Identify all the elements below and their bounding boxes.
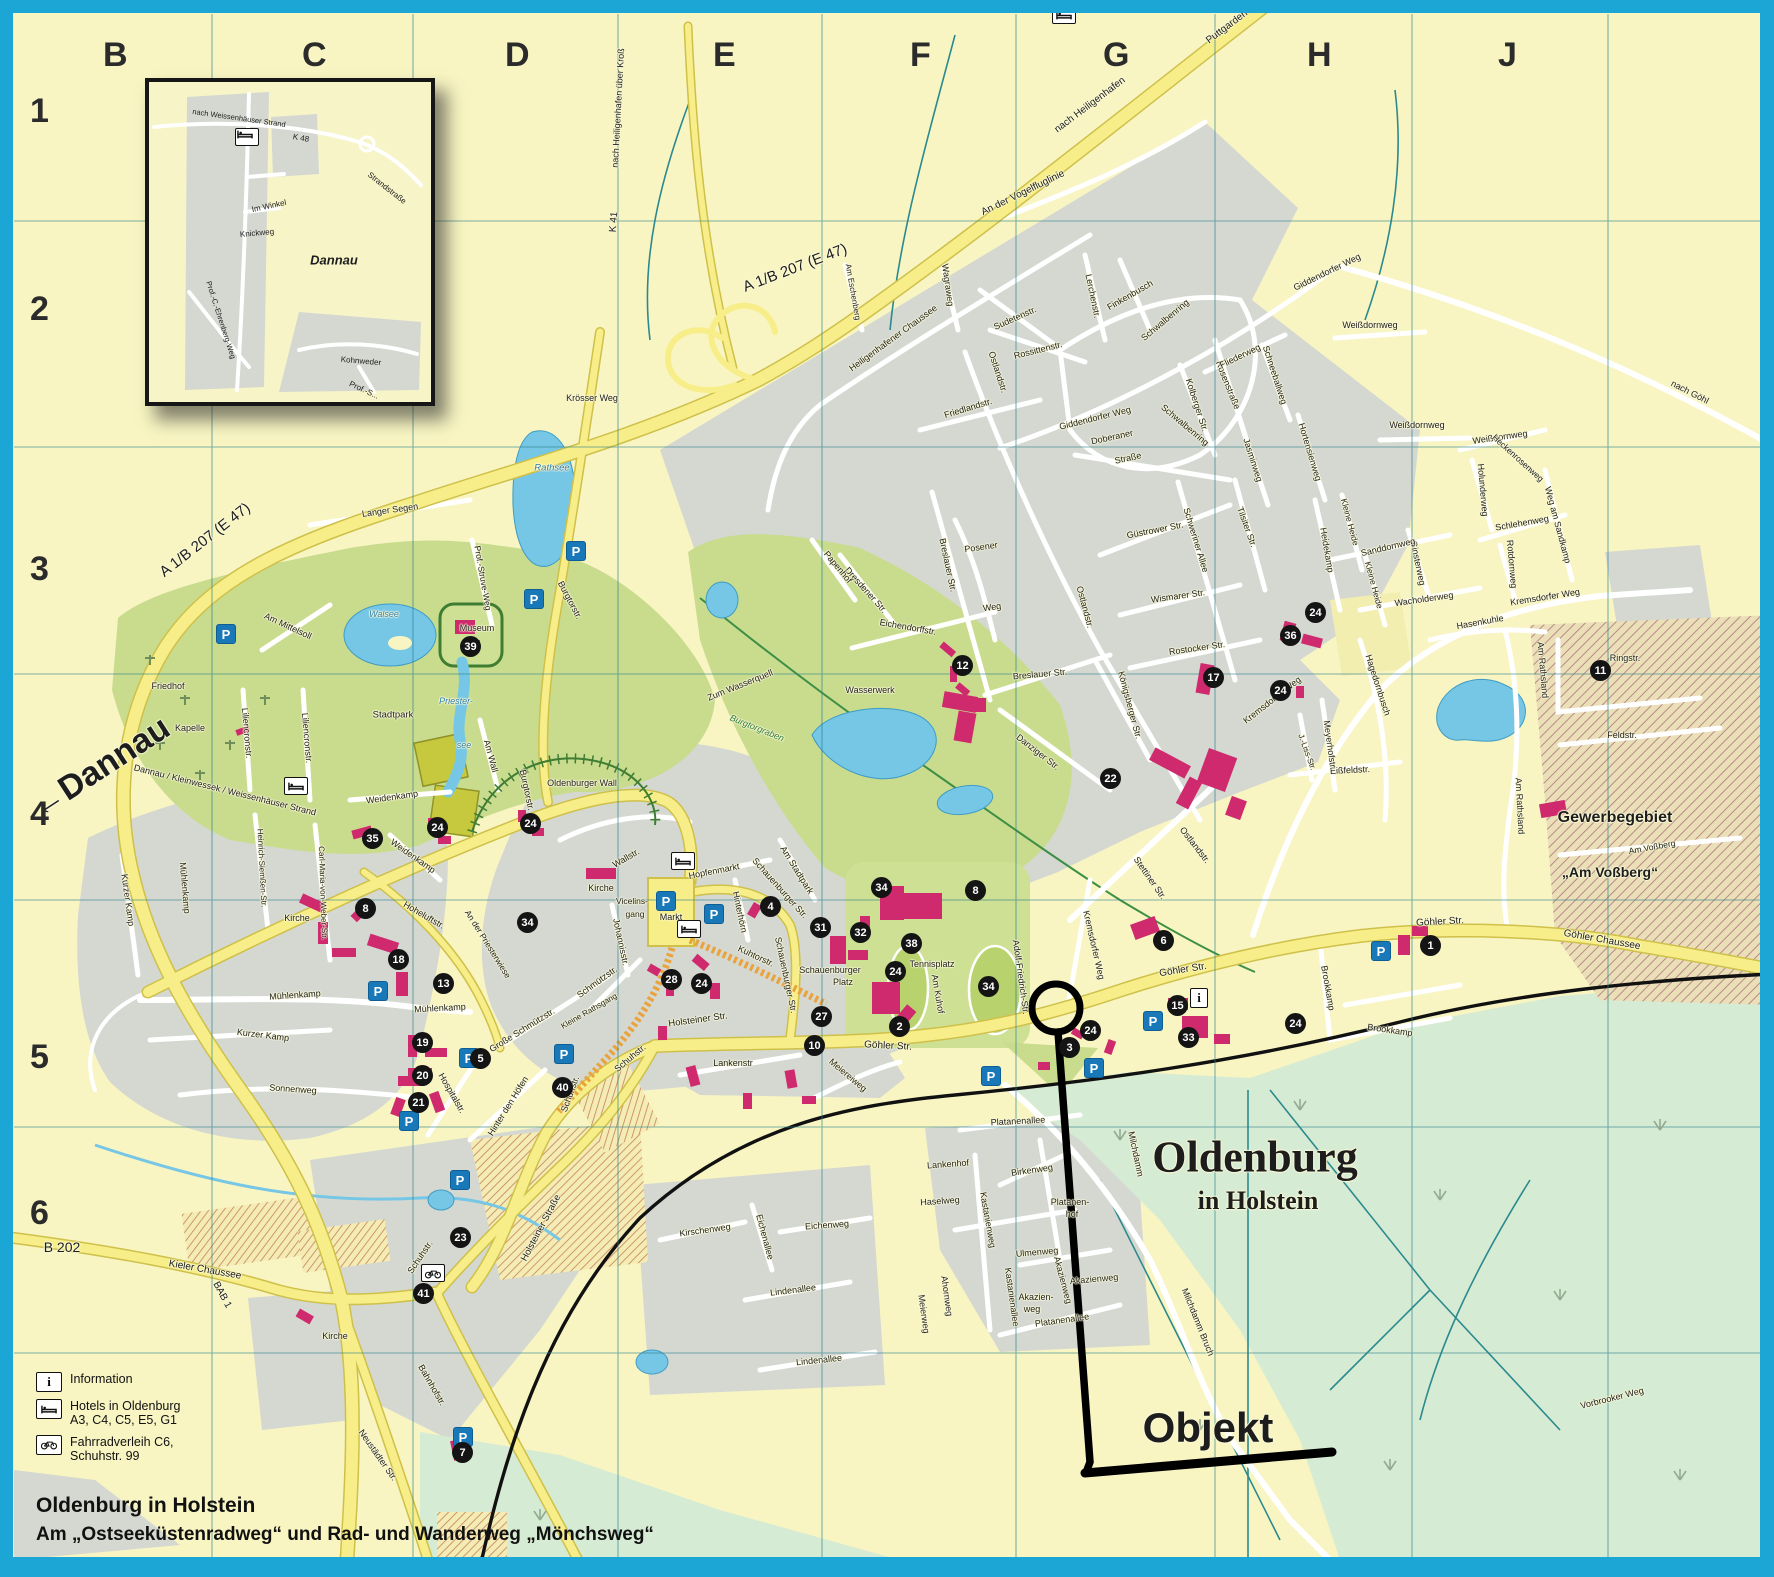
lake-island xyxy=(388,636,412,650)
legend-item: Fahrradverleih C6,Schuhstr. 99 xyxy=(36,1435,180,1464)
map-legend: iInformationHotels in OldenburgA3, C4, C… xyxy=(36,1372,180,1471)
info-icon: i xyxy=(36,1372,62,1392)
hotel-icon xyxy=(36,1399,62,1419)
footer-title: Oldenburg in Holstein xyxy=(36,1494,654,1518)
legend-label: Hotels in OldenburgA3, C4, C5, E5, G1 xyxy=(70,1399,180,1428)
legend-item: Hotels in OldenburgA3, C4, C5, E5, G1 xyxy=(36,1399,180,1428)
inset-map-dannau: nach Weissenhäuser StrandK 48Strandstraß… xyxy=(145,78,435,406)
legend-label: Information xyxy=(70,1372,133,1386)
frame-top xyxy=(0,0,1774,13)
frame-left xyxy=(0,0,13,1577)
frame-right xyxy=(1760,0,1774,1577)
legend-label: Fahrradverleih C6,Schuhstr. 99 xyxy=(70,1435,174,1464)
hotel-icon xyxy=(235,128,259,146)
inset-svg xyxy=(149,82,423,394)
map-footer: Oldenburg in Holstein Am „Ostseeküstenra… xyxy=(36,1494,654,1546)
city-map: BCDEFGHJ123456nach Heiligenhafen über Kr… xyxy=(0,0,1774,1577)
frame-bottom xyxy=(0,1557,1774,1577)
footer-subtitle: Am „Ostseeküstenradweg“ und Rad- und Wan… xyxy=(36,1524,654,1546)
bike-icon xyxy=(36,1435,62,1455)
legend-item: iInformation xyxy=(36,1372,180,1392)
inset-map-label: Dannau xyxy=(310,253,358,268)
